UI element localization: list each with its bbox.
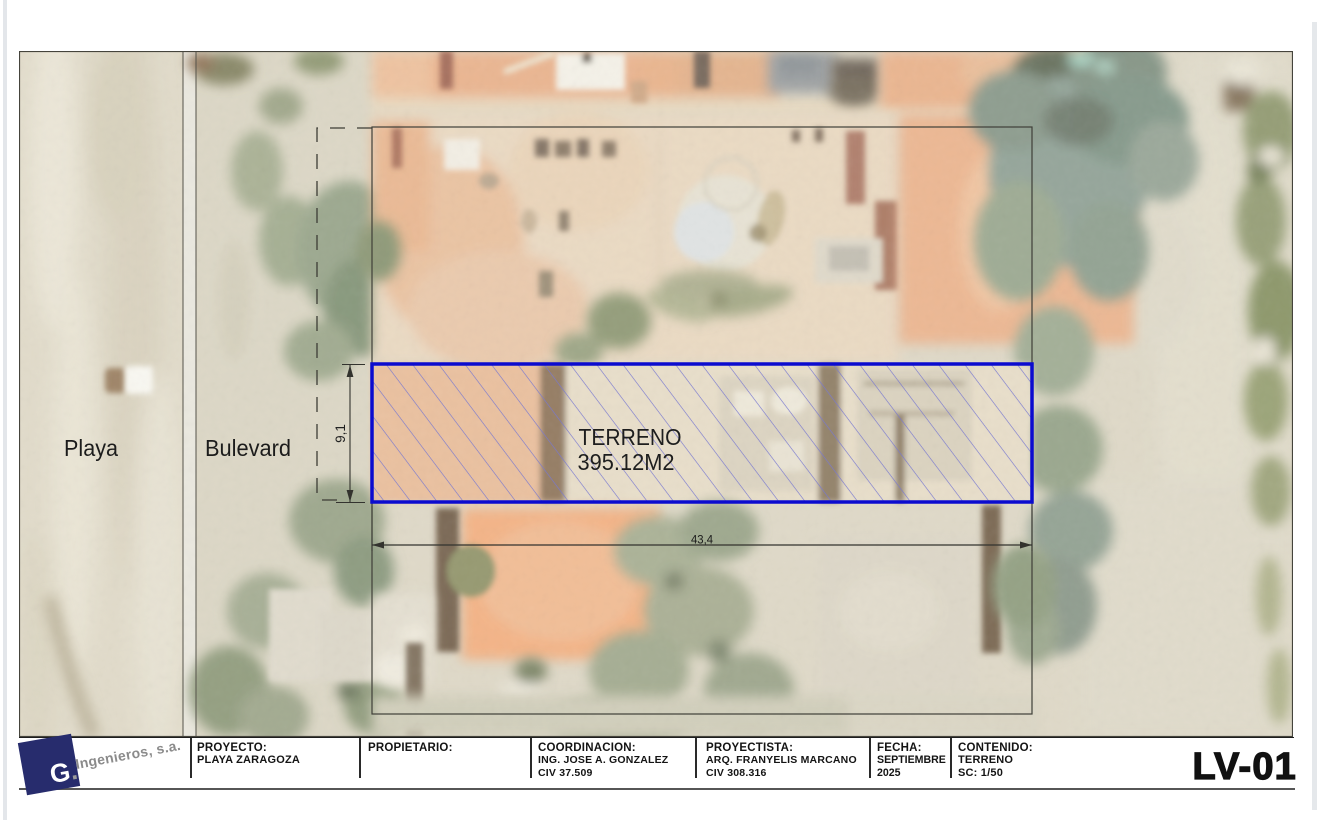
svg-text:Bulevard: Bulevard [205,435,291,461]
svg-text:43,4: 43,4 [691,533,713,547]
svg-text:Playa: Playa [64,435,118,461]
svg-text:395.12M2: 395.12M2 [578,449,675,475]
svg-text:TERRENO: TERRENO [579,424,682,450]
svg-text:9,1: 9,1 [333,424,348,443]
